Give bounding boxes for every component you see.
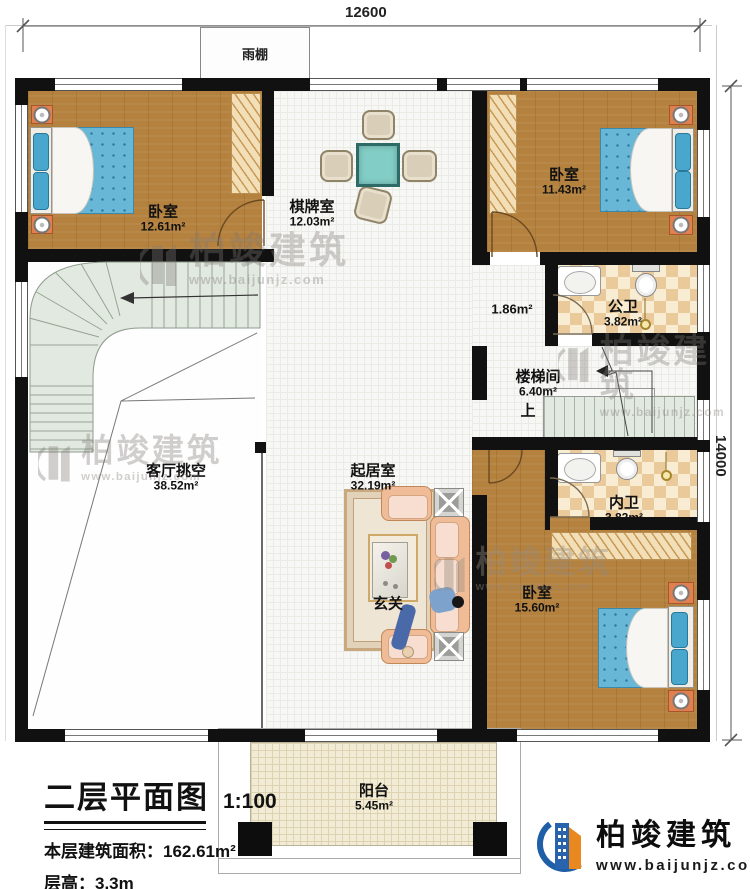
room-name: 卧室 xyxy=(141,203,186,220)
floor-height-label: 层高： xyxy=(44,874,95,889)
title-underline xyxy=(44,821,206,830)
room-area: 6.40m² xyxy=(515,386,560,400)
title-block: 二层平面图 1:100 本层建筑面积：162.61m² 层高：3.3m xyxy=(44,772,304,889)
room-area: 15.60m² xyxy=(515,602,560,616)
room-area: 1.86m² xyxy=(491,303,532,318)
label-stair-hall: 楼梯间 6.40m² xyxy=(515,368,560,399)
room-name: 玄关 xyxy=(373,595,403,612)
room-area: 32.19m² xyxy=(350,480,395,494)
label-bedroom1: 卧室 12.61m² xyxy=(141,203,186,234)
brand-name: 柏竣建筑 xyxy=(596,821,750,851)
label-stairs-up: 上 xyxy=(520,402,535,419)
room-name: 公卫 xyxy=(604,298,642,315)
room-name: 卧室 xyxy=(542,166,586,183)
room-area: 11.43m² xyxy=(542,184,586,198)
floor-area-line: 本层建筑面积：162.61m² xyxy=(44,837,304,862)
room-name: 起居室 xyxy=(350,462,395,479)
floor-height-value: 3.3m xyxy=(95,874,134,889)
brand-logo-icon xyxy=(536,818,588,876)
label-void: 客厅挑空 38.52m² xyxy=(146,462,206,493)
room-name: 内卫 xyxy=(605,494,643,511)
label-corridor-area: 1.86m² xyxy=(491,303,532,318)
room-name: 客厅挑空 xyxy=(146,462,206,479)
label-chess-room: 棋牌室 12.03m² xyxy=(289,198,334,229)
plan-scale: 1:100 xyxy=(223,790,277,814)
dimension-right: 14000 xyxy=(712,435,729,477)
floor-height-line: 层高：3.3m xyxy=(44,869,304,889)
floor-area-value: 162.61m² xyxy=(163,842,236,861)
floor-area-label: 本层建筑面积： xyxy=(44,842,163,861)
floor-plan-canvas: 雨棚 卧室 12.61m² 棋牌室 12.03m² 卧室 11.43m² 1.8… xyxy=(0,0,750,889)
up-label: 上 xyxy=(520,402,535,419)
room-area: 12.61m² xyxy=(141,221,186,235)
label-living: 起居室 32.19m² xyxy=(350,462,395,493)
room-area: 38.52m² xyxy=(146,480,206,494)
room-area: 12.03m² xyxy=(289,216,334,230)
room-area: 3.82m² xyxy=(604,316,642,330)
railing-post xyxy=(255,442,266,453)
label-public-bath: 公卫 3.82m² xyxy=(604,298,642,329)
brand-logo: 柏竣建筑 www.baijunjz.com xyxy=(536,818,750,876)
room-area: 5.45m² xyxy=(355,800,393,814)
room-name: 楼梯间 xyxy=(515,368,560,385)
plan-linework xyxy=(0,0,750,889)
dimension-top: 12600 xyxy=(345,4,387,21)
room-name: 棋牌室 xyxy=(289,198,334,215)
room-name: 阳台 xyxy=(355,782,393,799)
label-inner-bath: 内卫 3.82m² xyxy=(605,494,643,525)
label-balcony: 阳台 5.45m² xyxy=(355,782,393,813)
plan-title: 二层平面图 xyxy=(44,772,209,817)
label-entry: 玄关 xyxy=(373,595,403,612)
label-bedroom3: 卧室 15.60m² xyxy=(515,584,560,615)
room-area: 3.82m² xyxy=(605,512,643,526)
room-name: 卧室 xyxy=(515,584,560,601)
label-bedroom2: 卧室 11.43m² xyxy=(542,166,586,197)
brand-url: www.baijunjz.com xyxy=(596,857,750,874)
